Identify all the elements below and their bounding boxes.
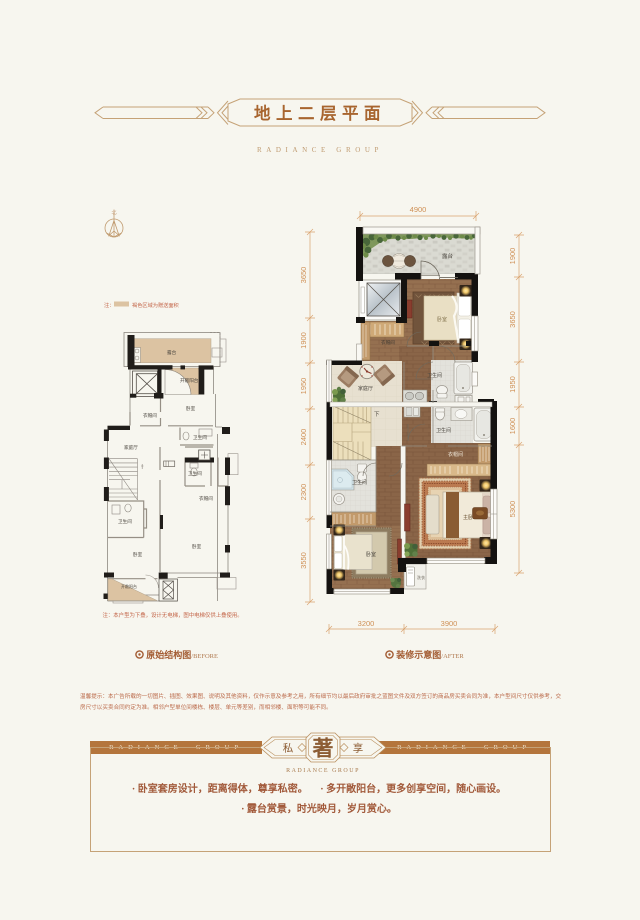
svg-text:主卧: 主卧	[463, 514, 473, 521]
svg-text:著: 著	[313, 737, 334, 761]
svg-text:洗衣: 洗衣	[417, 574, 425, 580]
svg-text:卧室: 卧室	[366, 551, 376, 558]
svg-text:1950: 1950	[299, 378, 308, 395]
svg-text:卫生间: 卫生间	[436, 427, 451, 434]
svg-text:享: 享	[353, 742, 364, 755]
svg-text:衣帽间: 衣帽间	[199, 495, 213, 502]
svg-text:3550: 3550	[299, 552, 308, 569]
svg-text:1600: 1600	[508, 418, 517, 435]
svg-text:卫生间: 卫生间	[193, 434, 207, 441]
svg-text:露台: 露台	[167, 349, 177, 356]
svg-text:RADIANCE GROUP: RADIANCE GROUP	[286, 768, 360, 774]
svg-text:卫生间: 卫生间	[188, 470, 202, 477]
svg-text:卧室: 卧室	[186, 405, 196, 412]
svg-text:卧室: 卧室	[437, 316, 447, 323]
svg-text:衣帽间: 衣帽间	[143, 412, 157, 419]
svg-text:5300: 5300	[508, 501, 517, 518]
svg-text:私: 私	[283, 743, 294, 755]
svg-text:地上二层平面: 地上二层平面	[254, 103, 386, 123]
svg-text:卧室: 卧室	[133, 551, 143, 558]
svg-text:卧室: 卧室	[192, 543, 202, 550]
svg-text:开敞阳台: 开敞阳台	[121, 583, 137, 589]
svg-text:衣帽间: 衣帽间	[381, 339, 395, 346]
svg-text:3200: 3200	[358, 619, 375, 628]
svg-text:下: 下	[374, 411, 380, 418]
svg-text:家庭厅: 家庭厅	[358, 385, 373, 392]
svg-text:卫生间: 卫生间	[427, 372, 442, 379]
svg-text:2400: 2400	[299, 429, 308, 446]
svg-text:卫生间: 卫生间	[118, 518, 132, 525]
svg-text:卫生间: 卫生间	[352, 479, 367, 486]
svg-text:1900: 1900	[299, 332, 308, 349]
svg-text:4900: 4900	[410, 205, 427, 214]
svg-text:家庭厅: 家庭厅	[124, 444, 138, 451]
svg-text:RADIANCE GROUP: RADIANCE GROUP	[257, 146, 383, 154]
svg-text:褐色区域为赠送面积: 褐色区域为赠送面积	[132, 301, 179, 309]
svg-text:3650: 3650	[508, 311, 517, 328]
svg-text:衣帽间: 衣帽间	[448, 451, 463, 458]
svg-text:露台: 露台	[442, 252, 454, 260]
svg-text:3900: 3900	[441, 619, 458, 628]
svg-text:开敞阳台: 开敞阳台	[180, 377, 199, 384]
svg-text:注：本户型为下叠，设计无电梯，图中电梯仅供上叠使用。: 注：本户型为下叠，设计无电梯，图中电梯仅供上叠使用。	[103, 611, 243, 619]
svg-text:北: 北	[111, 209, 116, 216]
svg-text:3650: 3650	[299, 267, 308, 284]
svg-text:1950: 1950	[508, 376, 517, 393]
svg-text:1900: 1900	[508, 248, 517, 265]
svg-text:注：: 注：	[104, 301, 114, 309]
svg-text:2300: 2300	[299, 484, 308, 501]
